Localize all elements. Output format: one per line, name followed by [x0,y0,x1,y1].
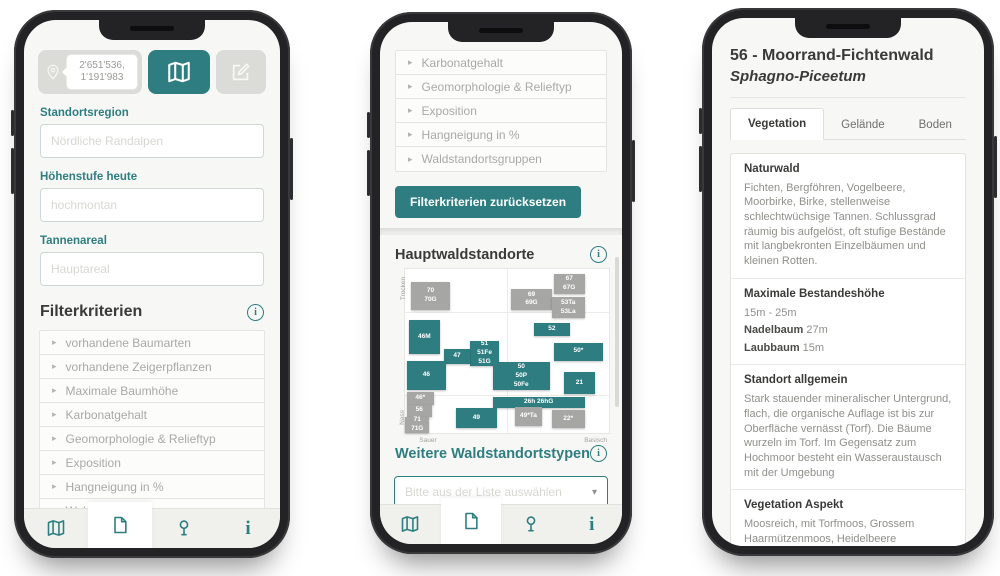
power-button [994,136,997,198]
section-text: Stark stauender mineralischer Untergrund… [744,392,952,480]
accordion-item-label: Karbonatgehalt [422,56,503,70]
chevron-right-icon: ▸ [408,58,413,67]
chart-box-label: 26h 26hG [524,398,553,407]
chart-box-label: 71 [414,416,421,425]
chevron-right-icon: ▸ [52,386,57,395]
chart-box-50[interactable]: 50* [554,343,603,361]
speaker-slot [826,24,870,29]
accordion-item[interactable]: ▸Exposition [396,99,606,123]
nav-tab-location-pin[interactable] [501,504,562,544]
main-sites-header: Hauptwaldstandorte i [395,246,607,263]
section-text: Nadelbaum 27m [744,323,952,338]
section-text: Moosreich, mit Torfmoos, Grossem Haarmüt… [744,517,952,546]
chevron-right-icon: ▸ [52,458,57,467]
chart-box-label: 53La [561,308,576,317]
coordinate-bubble: 2'651'536, 1'191'983 [66,54,138,90]
volume-button [367,112,370,138]
chart-box-label: 50 [518,363,525,372]
phone-screen: 2'651'536, 1'191'983 Standortsregion Höh… [24,20,280,548]
accordion-item-label: Waldstandortsgruppen [422,152,542,166]
nav-tab-document[interactable] [88,502,152,548]
location-pin-icon [521,514,541,534]
accordion-item[interactable]: ▸Karbonatgehalt [40,403,264,427]
chevron-down-icon: ▾ [592,487,597,498]
location-widget: 2'651'536, 1'191'983 [38,50,266,94]
chart-box-67[interactable]: 6767G [554,274,585,294]
detail-section: Vegetation AspektMoosreich, mit Torfmoos… [731,490,965,546]
chart-box-label: 70 [427,287,434,296]
accordion-item-label: Maximale Baumhöhe [66,384,179,398]
bottom-navigation: i [24,508,280,548]
chart-box-47[interactable]: 47 [444,349,471,364]
more-types-heading: Weitere Waldstandortstypen [395,446,590,462]
chevron-right-icon: ▸ [408,82,413,91]
map-icon [166,59,192,85]
chart-box-71[interactable]: 7171G [405,417,429,433]
chart-box-label: 46M [418,333,431,342]
volume-button [699,146,702,192]
info-icon: i [589,515,594,534]
site-type-latin-name: Sphagno-Piceetum [730,68,966,85]
standortsregion-input[interactable] [40,124,264,158]
phone-notch [795,18,901,38]
filter-accordion: ▸Karbonatgehalt▸Geomorphologie & Relieft… [395,50,607,172]
accordion-item[interactable]: ▸Exposition [40,451,264,475]
chart-box-label: 52 [548,325,555,334]
chart-box-label: 46* [415,394,425,403]
chart-box-70[interactable]: 7070G [411,282,450,310]
chevron-right-icon: ▸ [52,482,57,491]
ecogram-chart: Trocken Nass Sauer Basisch 7070G6767G696… [404,268,610,434]
chart-box-46[interactable]: 46 [407,361,446,391]
info-icon: i [245,519,250,538]
nav-tab-document[interactable] [441,498,502,544]
edit-icon [230,61,252,83]
chart-box-label: 70G [424,296,436,305]
chart-box-label: 67G [563,284,575,293]
chart-box-label: 50Fe [514,381,529,390]
divider [730,97,966,98]
accordion-item[interactable]: ▸Geomorphologie & Relieftyp [396,75,606,99]
section-heading: Vegetation Aspekt [744,499,952,511]
coordinate-line1: 2'651'536, [79,60,125,73]
chevron-right-icon: ▸ [52,338,57,347]
site-type-title: 56 - Moorrand-Fichtenwald [730,46,966,67]
phone-notch [99,20,205,40]
reset-filters-button[interactable]: Filterkriterien zurücksetzen [395,186,581,218]
phone-mockup-right: 56 - Moorrand-Fichtenwald Sphagno-Piceet… [702,8,994,556]
chevron-right-icon: ▸ [408,130,413,139]
chart-box-56[interactable]: 56 [407,405,431,416]
chart-box-label: 46 [423,371,430,380]
detail-tabs: VegetationGeländeBoden [730,108,966,140]
chart-box-49Ta[interactable]: 49*Ta [515,407,542,427]
more-types-header: Weitere Waldstandortstypen i [395,445,607,462]
detail-card: NaturwaldFichten, Bergföhren, Vogelbeere… [730,153,966,546]
info-icon[interactable]: i [590,246,607,263]
coordinate-line2: 1'191'983 [81,72,124,85]
chart-box-label: 47 [453,352,460,361]
accordion-item-label: Geomorphologie & Relieftyp [66,432,216,446]
accordion-item[interactable]: ▸Waldstandortsgruppen [396,147,606,171]
ecogram-wrapper: Trocken Nass Sauer Basisch 7070G6767G696… [404,268,610,434]
chevron-right-icon: ▸ [408,106,413,115]
chevron-right-icon: ▸ [52,410,57,419]
accordion-item-label: Hangneigung in % [422,128,520,142]
field-label-hoehenstufe: Höhenstufe heute [40,171,264,183]
chart-box-46[interactable]: 46* [407,392,434,405]
section-heading: Maximale Bestandeshöhe [744,288,952,300]
hoehenstufe-input[interactable] [40,188,264,222]
chart-box-53Ta[interactable]: 53Ta53La [552,297,585,318]
chart-box-label: 69G [525,299,537,308]
chart-box-label: 50* [574,347,584,356]
tab-vegetation[interactable]: Vegetation [730,108,824,140]
chart-box-label: 53Ta [561,299,575,308]
section-divider [380,228,622,235]
field-label-standortsregion: Standortsregion [40,107,264,119]
accordion-item-label: Geomorphologie & Relieftyp [422,80,572,94]
filter-accordion: ▸vorhandene Baumarten▸vorhandene Zeigerp… [39,330,265,524]
chart-box-label: 22* [563,415,573,424]
chart-box-21[interactable]: 21 [564,372,595,393]
accordion-item[interactable]: ▸vorhandene Baumarten [40,331,264,355]
section-text: Fichten, Bergföhren, Vogelbeere, Moorbir… [744,181,952,269]
accordion-item[interactable]: ▸Karbonatgehalt [396,51,606,75]
map-icon [400,514,420,534]
chart-box-49[interactable]: 49 [456,408,497,428]
phone-notch [448,22,554,42]
chart-box-46M[interactable]: 46M [409,320,440,354]
chart-box-label: 51G [478,358,490,367]
volume-button [699,108,702,134]
accordion-item-label: Hangneigung in % [66,480,164,494]
nav-tab-map[interactable] [380,504,441,544]
chart-box-label: 50P [515,372,527,381]
accordion-item[interactable]: ▸Hangneigung in % [40,475,264,499]
info-icon[interactable]: i [590,445,607,462]
location-pin-icon [174,518,194,538]
nav-tab-info[interactable]: i [216,508,280,548]
chart-box-52[interactable]: 52 [534,323,571,336]
edit-coordinates-button[interactable] [216,50,266,94]
accordion-item-label: vorhandene Baumarten [66,336,191,350]
tab-boden[interactable]: Boden [902,110,969,140]
gridline [507,269,508,433]
chart-box-label: 49 [473,414,480,423]
chart-box-69[interactable]: 6969G [511,289,552,310]
select-placeholder: Bitte aus der Liste auswählen [405,485,562,499]
chevron-right-icon: ▸ [408,155,413,164]
detail-section: NaturwaldFichten, Bergföhren, Vogelbeere… [731,154,965,279]
chevron-right-icon: ▸ [52,434,57,443]
x-axis-right-label: Basisch [584,437,607,444]
phone-screen: ▸Karbonatgehalt▸Geomorphologie & Relieft… [380,22,622,544]
chart-box-label: 69 [528,291,535,300]
show-map-button[interactable] [148,50,210,94]
speaker-slot [130,26,174,31]
bottom-navigation: i [380,504,622,544]
chart-box-label: 21 [576,379,583,388]
chart-box-50[interactable]: 5050P50Fe [493,362,550,390]
chart-box-label: 56 [416,406,423,415]
nav-tab-location-pin[interactable] [152,508,216,548]
filter-heading: Filterkriterien [40,303,142,321]
speaker-slot [479,28,523,33]
accordion-item[interactable]: ▸Maximale Baumhöhe [40,379,264,403]
tannenareal-input[interactable] [40,252,264,286]
filter-header: Filterkriterien i [40,303,264,321]
accordion-item-label: vorhandene Zeigerpflanzen [66,360,212,374]
volume-button [367,150,370,196]
volume-button [11,110,14,136]
detail-section: Standort allgemeinStark stauender minera… [731,365,965,490]
accordion-item-label: Exposition [66,456,121,470]
document-icon [110,515,130,535]
power-button [290,138,293,200]
phone-screen: 56 - Moorrand-Fichtenwald Sphagno-Piceet… [712,18,984,546]
chart-box-label: 51 [481,340,488,349]
y-axis-top-label: Trocken [400,277,407,300]
section-heading: Naturwald [744,163,952,175]
chart-box-label: 71G [411,425,423,434]
chevron-right-icon: ▸ [52,362,57,371]
nav-tab-map[interactable] [24,508,88,548]
scrollbar[interactable] [615,257,619,407]
field-label-tannenareal: Tannenareal [40,235,264,247]
phone-mockup-left: 2'651'536, 1'191'983 Standortsregion Höh… [14,10,290,558]
map-icon [46,518,66,538]
tab-gelände[interactable]: Gelände [824,110,901,140]
accordion-item-label: Karbonatgehalt [66,408,147,422]
chart-box-label: 67 [566,275,573,284]
section-heading: Standort allgemein [744,374,952,386]
section-text: 15m - 25m [744,306,952,321]
nav-tab-info[interactable]: i [562,504,623,544]
volume-button [11,148,14,194]
chart-box-22[interactable]: 22* [552,410,585,428]
chart-box-label: 51Fe [477,349,492,358]
power-button [632,140,635,202]
document-icon [461,511,481,531]
main-sites-heading: Hauptwaldstandorte [395,247,534,263]
accordion-item[interactable]: ▸vorhandene Zeigerpflanzen [40,355,264,379]
chart-box-label: 49*Ta [520,412,537,421]
section-text: Laubbaum 15m [744,341,952,356]
detail-section: Maximale Bestandeshöhe15m - 25mNadelbaum… [731,279,965,366]
accordion-item-label: Exposition [422,104,477,118]
coordinate-display: 2'651'536, 1'191'983 [38,50,142,94]
accordion-item[interactable]: ▸Geomorphologie & Relieftyp [40,427,264,451]
phone-mockup-middle: ▸Karbonatgehalt▸Geomorphologie & Relieft… [370,12,632,554]
x-axis-left-label: Sauer [419,437,436,444]
info-icon[interactable]: i [247,304,264,321]
accordion-item[interactable]: ▸Hangneigung in % [396,123,606,147]
